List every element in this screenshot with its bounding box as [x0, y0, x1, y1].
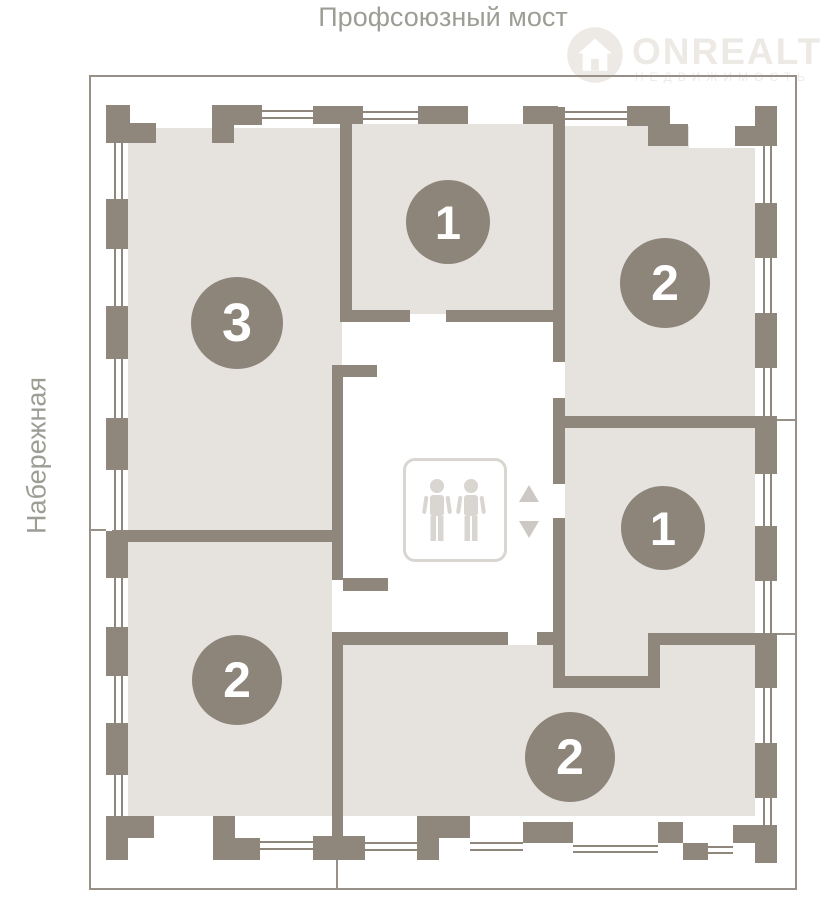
wall-segment	[446, 310, 565, 322]
frame-divider-line	[336, 858, 338, 890]
wall-segment	[755, 313, 777, 368]
street-label-top: Профсоюзный мост	[89, 2, 797, 33]
window-segment	[114, 359, 123, 418]
window-segment	[114, 143, 123, 199]
onrealt-logo-text: ONREALT	[632, 31, 822, 73]
street-label-left: Набережная	[22, 356, 53, 556]
wall-segment	[128, 816, 154, 838]
wall-segment	[106, 306, 128, 359]
unit-badge-3-top-left: 3	[191, 277, 283, 369]
wall-segment	[106, 418, 128, 470]
elevator-passengers-icon	[419, 478, 491, 542]
elevator-down-arrow-icon	[519, 521, 539, 538]
wall-segment	[755, 106, 777, 146]
elevator-up-arrow-icon	[519, 485, 539, 502]
wall-segment	[627, 106, 670, 126]
wall-segment	[755, 416, 777, 474]
wall-segment	[755, 526, 777, 581]
window-segment	[763, 581, 772, 633]
window-segment	[763, 798, 772, 828]
frame-divider-line	[777, 633, 797, 635]
unit-badge-2-bottom-left: 2	[192, 635, 282, 725]
wall-segment	[106, 199, 128, 249]
window-segment	[763, 688, 772, 743]
window-segment	[262, 110, 313, 119]
room-area-1-midright	[565, 633, 648, 676]
wall-segment	[755, 743, 777, 798]
unit-badge-1-top-middle: 1	[406, 180, 490, 264]
unit-badge-1-mid-right: 1	[621, 486, 705, 570]
wall-segment	[340, 107, 352, 314]
wall-segment	[106, 105, 130, 143]
window-segment	[470, 842, 523, 851]
window-segment	[260, 841, 313, 850]
wall-segment	[106, 627, 128, 676]
wall-segment	[332, 365, 343, 580]
wall-segment	[537, 632, 565, 645]
window-segment	[114, 249, 123, 306]
window-segment	[363, 111, 418, 120]
wall-segment	[417, 816, 439, 860]
wall-segment	[553, 416, 757, 428]
wall-segment	[755, 633, 777, 688]
wall-segment	[313, 106, 363, 124]
wall-segment	[755, 825, 777, 863]
wall-segment	[212, 105, 234, 143]
wall-segment	[553, 107, 565, 322]
wall-segment	[553, 518, 565, 688]
wall-segment	[235, 838, 260, 860]
wall-segment	[553, 398, 565, 484]
window-segment	[763, 146, 772, 203]
wall-segment	[332, 632, 343, 860]
elevator-icon	[403, 458, 507, 562]
window-segment	[114, 775, 123, 816]
room-area-2-bottomright	[660, 645, 755, 816]
wall-segment	[343, 365, 377, 377]
wall-segment	[112, 530, 343, 542]
window-segment	[114, 470, 123, 531]
window-segment	[763, 474, 772, 526]
wall-segment	[553, 322, 565, 362]
window-segment	[763, 368, 772, 416]
window-segment	[365, 842, 417, 851]
frame-divider-line	[777, 419, 797, 421]
wall-segment	[332, 632, 508, 645]
window-segment	[114, 578, 123, 627]
unit-badge-2-bottom-right: 2	[525, 712, 615, 802]
frame-divider-line	[89, 529, 106, 531]
room-area-2-bottomright	[343, 645, 553, 816]
wall-segment	[755, 203, 777, 258]
wall-segment	[106, 723, 128, 775]
wall-segment	[130, 123, 156, 143]
window-segment	[763, 258, 772, 313]
wall-segment	[553, 676, 660, 688]
window-segment	[114, 676, 123, 723]
window-segment	[708, 846, 733, 854]
wall-segment	[658, 822, 683, 843]
unit-badge-2-top-right: 2	[620, 238, 710, 328]
wall-segment	[340, 310, 410, 322]
floor-plan-image: Профсоюзный мост Набережная ONREALT НЕДВ…	[0, 0, 828, 910]
window-segment	[573, 845, 658, 853]
wall-segment	[523, 822, 573, 843]
wall-segment	[106, 816, 128, 860]
wall-segment	[418, 106, 468, 124]
wall-segment	[213, 816, 235, 860]
wall-segment	[648, 124, 688, 146]
wall-segment	[343, 578, 388, 591]
wall-segment	[660, 633, 757, 645]
wall-segment	[683, 843, 708, 860]
window-segment	[558, 111, 627, 120]
